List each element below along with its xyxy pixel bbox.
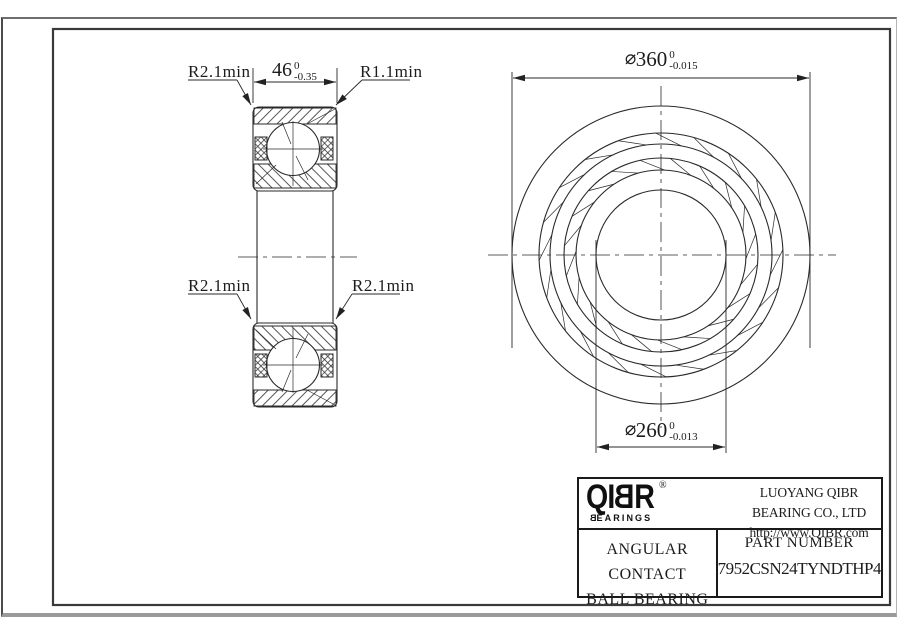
registered-trademark-symbol: ® bbox=[659, 480, 667, 491]
front-view bbox=[488, 86, 836, 428]
title-block-bottom-row: ANGULAR CONTACT BALL BEARING PART NUMBER… bbox=[579, 530, 881, 596]
outer-dia-tol-lower: -0.015 bbox=[669, 61, 697, 72]
diameter-symbol: ⌀ bbox=[624, 49, 635, 68]
bearing-section bbox=[253, 323, 337, 407]
leader-arrow bbox=[336, 80, 362, 105]
product-name-cell: ANGULAR CONTACT BALL BEARING bbox=[579, 530, 718, 596]
product-name-line1: ANGULAR CONTACT bbox=[579, 537, 716, 587]
outer-diameter-dimension: ⌀360 0 -0.015 bbox=[624, 49, 697, 71]
width-dimension: 46 0 -0.35 bbox=[272, 60, 317, 82]
leader-arrow bbox=[237, 294, 251, 319]
part-number-label: PART NUMBER bbox=[718, 530, 881, 552]
outer-diameter-value: 360 bbox=[636, 49, 668, 70]
bearing-section bbox=[253, 107, 337, 191]
part-number-value: 7952CSN24TYNDTHP4 bbox=[718, 552, 881, 579]
product-name-line2: BALL BEARING bbox=[579, 587, 716, 612]
outer-ring-hatch bbox=[254, 108, 336, 124]
bore-dia-tol-lower: -0.013 bbox=[669, 432, 697, 443]
cage-seal bbox=[321, 354, 333, 377]
width-tol-lower: -0.35 bbox=[294, 72, 317, 83]
title-block-header-row: QIBR ® BEARINGS LUOYANG QIBR BEARING CO.… bbox=[579, 479, 881, 530]
title-block: QIBR ® BEARINGS LUOYANG QIBR BEARING CO.… bbox=[577, 477, 883, 598]
radius-label-mid-right: R2.1min bbox=[352, 277, 415, 294]
logo-bearings-text: BEARINGS bbox=[586, 513, 729, 524]
width-value: 46 bbox=[272, 60, 292, 80]
logo-cell: QIBR ® BEARINGS bbox=[579, 479, 737, 528]
drawing-canvas: R2.1min R1.1min R2.1min R2.1min 46 0 -0.… bbox=[0, 0, 900, 636]
cage-seal bbox=[255, 354, 267, 377]
bore-diameter-value: 260 bbox=[636, 420, 668, 441]
radius-label-mid-left: R2.1min bbox=[188, 277, 251, 294]
section-view bbox=[238, 107, 357, 407]
leader-arrow bbox=[237, 80, 251, 105]
radius-label-top-left: R2.1min bbox=[188, 63, 251, 80]
outer-ring-hatch bbox=[254, 390, 336, 406]
bore-diameter-dimension: ⌀260 0 -0.013 bbox=[624, 420, 697, 442]
qibr-logo: QIBR bbox=[586, 482, 654, 512]
company-cell: LUOYANG QIBR BEARING CO., LTD http://www… bbox=[737, 479, 881, 528]
diameter-symbol: ⌀ bbox=[624, 420, 635, 439]
part-number-cell: PART NUMBER 7952CSN24TYNDTHP4 bbox=[718, 530, 881, 596]
leader-arrow bbox=[336, 294, 352, 319]
company-name: LUOYANG QIBR BEARING CO., LTD bbox=[737, 483, 881, 523]
cage-seal bbox=[255, 137, 267, 160]
radius-label-top-right: R1.1min bbox=[360, 63, 423, 80]
cage-seal bbox=[321, 137, 333, 160]
